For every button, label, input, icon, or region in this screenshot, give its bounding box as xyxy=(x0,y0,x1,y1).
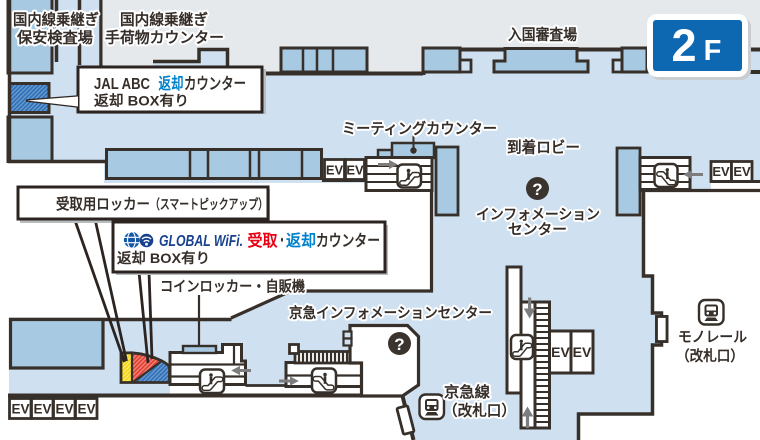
svg-text:受取用ロッカー: 受取用ロッカー xyxy=(56,195,150,213)
svg-text:受取: 受取 xyxy=(248,231,278,250)
svg-text:?: ? xyxy=(532,180,542,199)
svg-text:京急インフォメーションセンター: 京急インフォメーションセンター xyxy=(289,304,492,322)
svg-text:手荷物カウンター: 手荷物カウンター xyxy=(105,29,224,47)
svg-text:EV: EV xyxy=(55,402,73,417)
svg-text:保安検査場: 保安検査場 xyxy=(16,29,93,47)
svg-text:（スマートピックアップ）: （スマートピックアップ） xyxy=(150,197,268,212)
svg-text:EV: EV xyxy=(346,163,364,178)
svg-text:EV: EV xyxy=(712,164,730,179)
svg-text:EV: EV xyxy=(733,164,751,179)
svg-text:センター: センター xyxy=(508,222,567,239)
svg-text:・: ・ xyxy=(278,233,286,250)
svg-text:（改札口）: （改札口） xyxy=(443,402,516,420)
svg-text:国内線乗継ぎ: 国内線乗継ぎ xyxy=(120,11,208,29)
svg-text:到着ロビー: 到着ロビー xyxy=(507,138,580,157)
svg-text:入国審査場: 入国審査場 xyxy=(508,26,577,44)
svg-text:?: ? xyxy=(394,335,404,354)
svg-text:返却 BOX有り: 返却 BOX有り xyxy=(94,93,189,109)
svg-text:GLOBAL WiFi.: GLOBAL WiFi. xyxy=(159,233,243,250)
svg-text:国内線乗継ぎ: 国内線乗継ぎ xyxy=(13,11,99,29)
svg-text:EV: EV xyxy=(11,402,29,417)
svg-text:インフォメーション: インフォメーション xyxy=(476,208,600,224)
svg-text:F: F xyxy=(704,35,722,67)
svg-text:京急線: 京急線 xyxy=(444,383,490,401)
svg-text:EV: EV xyxy=(326,163,344,178)
svg-text:EV: EV xyxy=(551,344,570,360)
svg-text:カウンター: カウンター xyxy=(184,75,246,93)
svg-text:カウンター: カウンター xyxy=(316,232,380,250)
svg-text:2: 2 xyxy=(671,20,696,71)
svg-text:コインロッカー・自販機: コインロッカー・自販機 xyxy=(160,278,305,296)
svg-text:EV: EV xyxy=(573,344,592,360)
svg-text:EV: EV xyxy=(77,402,95,417)
svg-text:ミーティングカウンター: ミーティングカウンター xyxy=(342,120,497,138)
svg-text:EV: EV xyxy=(33,402,51,417)
svg-text:モノレール: モノレール xyxy=(678,330,747,346)
svg-text:返却 BOX有り: 返却 BOX有り xyxy=(117,250,210,266)
svg-text:返却: 返却 xyxy=(286,231,316,250)
svg-text:（改札口）: （改札口） xyxy=(676,347,744,365)
svg-text:返却: 返却 xyxy=(159,74,184,93)
svg-text:JAL ABC: JAL ABC xyxy=(94,76,150,93)
